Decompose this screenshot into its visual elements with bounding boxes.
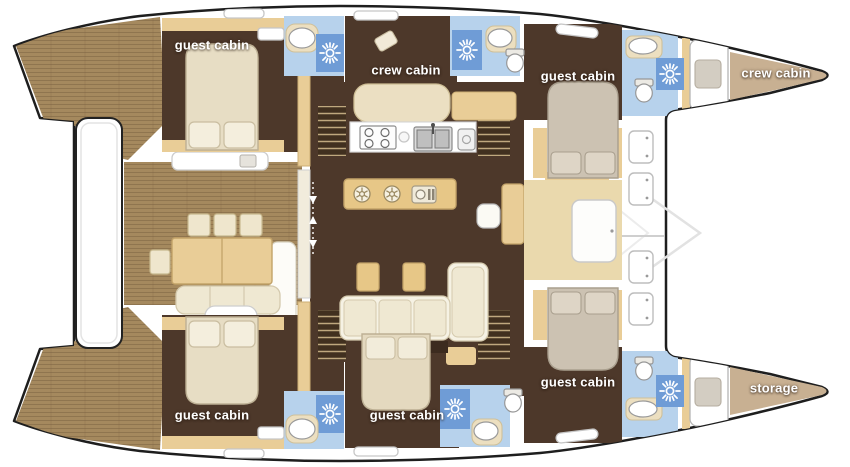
- room-label-crew-cabin-port-mid: crew cabin: [371, 63, 440, 78]
- dining-chair: [214, 214, 236, 236]
- bathroom-stbd-mid: [440, 385, 522, 447]
- dining-chair: [150, 250, 170, 274]
- forward-cockpit-table: [572, 200, 616, 262]
- bar-stool: [357, 263, 379, 291]
- dining-chair: [240, 214, 262, 236]
- toilet-icon: [504, 389, 522, 412]
- crew-berth: [354, 84, 450, 122]
- bathroom-port-mid: [450, 16, 524, 76]
- stern-platform: [76, 118, 122, 348]
- nav-seat: [477, 204, 500, 228]
- bathroom-port-fwd: [622, 30, 684, 116]
- forward-cockpit: [524, 180, 622, 280]
- double-sink-icon: [414, 123, 452, 151]
- nav-desk: [502, 184, 524, 244]
- room-label-guest-cabin-stbd-mid: guest cabin: [370, 408, 444, 423]
- room-label-guest-cabin-stbd-aft: guest cabin: [175, 408, 249, 423]
- salon-aft-door: [298, 62, 310, 406]
- bathroom-port-aft: [284, 16, 344, 76]
- toilet-icon: [635, 79, 653, 102]
- washbasin-icon: [629, 38, 657, 54]
- dish-icon: [412, 186, 436, 203]
- bathroom-stbd-aft: [284, 391, 344, 449]
- winch-icon: [384, 186, 400, 202]
- deck-hatch-icon: [629, 293, 653, 325]
- yacht-floor-plan: guest cabin crew cabin guest cabin crew …: [0, 0, 850, 467]
- washbasin-icon: [488, 29, 512, 47]
- deck-hatch-icon: [629, 173, 653, 205]
- room-label-guest-cabin-stbd-fwd: guest cabin: [541, 375, 615, 390]
- washbasin-icon: [474, 422, 498, 440]
- bow-compartments: [690, 40, 827, 426]
- galley-island: [344, 179, 456, 209]
- room-label-guest-cabin-port-aft: guest cabin: [175, 38, 249, 53]
- washbasin-icon: [289, 28, 315, 48]
- bathroom-stbd-fwd: [622, 351, 684, 437]
- toilet-icon: [506, 49, 524, 72]
- stove-icon: [360, 126, 396, 149]
- room-label-storage-stbd-bow: storage: [750, 381, 798, 396]
- galley-appliance-icon: [458, 129, 475, 150]
- deck-hatch-icon: [629, 251, 653, 283]
- toilet-icon: [635, 357, 653, 380]
- dining-chair: [188, 214, 210, 236]
- washbasin-icon: [289, 419, 315, 439]
- washbasin-icon: [629, 401, 657, 417]
- bar-stool: [403, 263, 425, 291]
- aft-bench: [172, 152, 268, 170]
- room-label-guest-cabin-port-fwd: guest cabin: [541, 69, 615, 84]
- room-label-crew-cabin-port-bow: crew cabin: [741, 66, 810, 81]
- winch-icon: [354, 186, 370, 202]
- deck-hatch-icon: [629, 131, 653, 163]
